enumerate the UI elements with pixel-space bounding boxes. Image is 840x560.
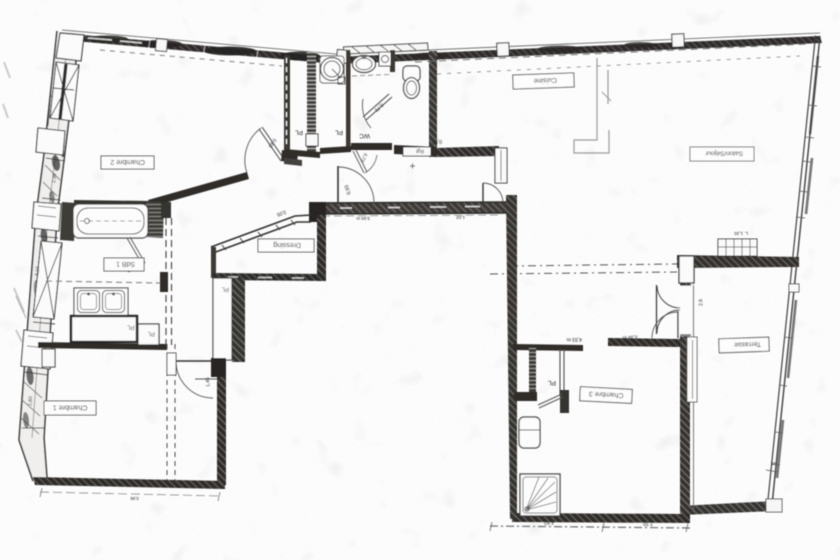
- svg-text:2,80: 2,80: [27, 396, 34, 406]
- svg-text:1,02: 1,02: [456, 215, 465, 220]
- svg-text:Dressing: Dressing: [273, 241, 301, 248]
- svg-text:3,94 m: 3,94 m: [356, 216, 370, 221]
- svg-text:2,95: 2,95: [51, 173, 58, 184]
- svg-text:45: 45: [770, 461, 776, 466]
- svg-text:0,90: 0,90: [432, 138, 442, 144]
- svg-text:Chambre 1: Chambre 1: [53, 404, 88, 411]
- svg-text:PL: PL: [147, 330, 155, 336]
- svg-text:PL: PL: [221, 286, 229, 292]
- svg-text:3,10: 3,10: [34, 266, 41, 277]
- svg-text:4,93 m: 4,93 m: [567, 336, 582, 342]
- svg-text:L. 1,20: L. 1,20: [734, 231, 748, 236]
- svg-text:2,6: 2,6: [698, 299, 704, 306]
- svg-text:1,45: 1,45: [205, 377, 212, 387]
- svg-text:PL: PL: [548, 379, 556, 386]
- svg-text:Salon/Séjour: Salon/Séjour: [704, 150, 743, 157]
- svg-text:SdB 1: SdB 1: [116, 260, 135, 267]
- svg-text:3,39 m: 3,39 m: [623, 334, 638, 341]
- svg-text:Cuisine: Cuisine: [533, 76, 557, 84]
- svg-text:PL: PL: [335, 129, 343, 136]
- svg-text:PL: PL: [126, 324, 134, 330]
- svg-text:PL: PL: [295, 129, 303, 136]
- svg-text:Terrasse: Terrasse: [734, 340, 761, 348]
- svg-text:WC: WC: [359, 132, 370, 139]
- svg-text:Chambre 2: Chambre 2: [110, 158, 145, 165]
- svg-text:2,20: 2,20: [643, 520, 653, 526]
- svg-text:4,60: 4,60: [544, 519, 554, 525]
- svg-text:Rgt: Rgt: [416, 148, 424, 154]
- svg-text:3,96: 3,96: [130, 496, 139, 501]
